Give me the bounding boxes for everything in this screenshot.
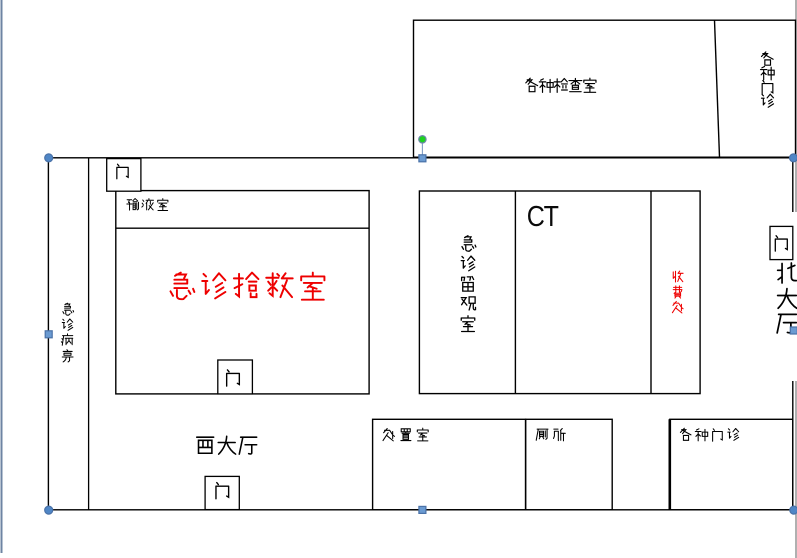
svg-text:CT: CT: [527, 201, 559, 233]
